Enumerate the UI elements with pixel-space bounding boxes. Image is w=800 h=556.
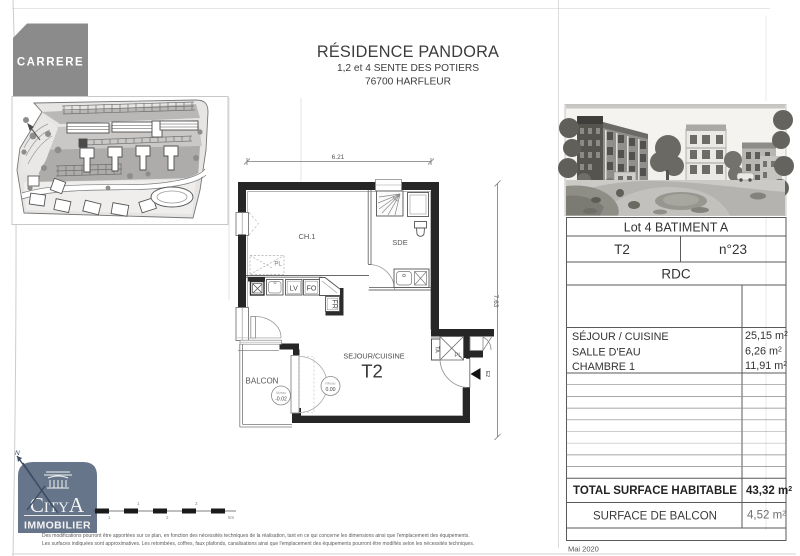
svg-text:Les surfaces indiquées sont ap: Les surfaces indiquées sont approximativ… [42,541,474,547]
svg-text:Niveau: Niveau [276,391,286,395]
svg-text:5m: 5m [228,515,235,520]
svg-text:T2: T2 [361,361,383,382]
svg-text:-0.02: -0.02 [275,397,287,403]
svg-text:0.00: 0.00 [325,387,335,393]
svg-text:IMMOBILIER: IMMOBILIER [24,520,91,532]
svg-text:1,2 et 4 SENTE DES POTIERS: 1,2 et 4 SENTE DES POTIERS [337,63,479,74]
svg-text:CH.1: CH.1 [298,232,315,241]
svg-text:76700 HARFLEUR: 76700 HARFLEUR [365,77,451,88]
svg-text:LV: LV [290,286,298,293]
svg-text:SDE: SDE [392,238,407,247]
svg-text:RÉSIDENCE PANDORA: RÉSIDENCE PANDORA [317,42,499,61]
svg-text:25,15 m2: 25,15 m2 [745,330,788,342]
svg-text:PL: PL [454,353,462,359]
svg-text:SALLE D'EAU: SALLE D'EAU [572,347,641,359]
svg-text:N: N [15,450,20,457]
svg-text:FO: FO [307,286,317,293]
svg-text:SEJOUR/CUISINE: SEJOUR/CUISINE [343,352,404,361]
svg-text:PL: PL [274,262,282,268]
svg-text:4,52 m2: 4,52 m2 [747,510,786,522]
svg-text:T2: T2 [614,242,630,257]
svg-text:CARRERE: CARRERE [17,57,84,69]
svg-text:RDC: RDC [661,267,690,282]
svg-text:SÉJOUR / CUISINE: SÉJOUR / CUISINE [572,330,669,343]
svg-text:Mai 2020: Mai 2020 [568,545,599,554]
svg-text:Niveau: Niveau [326,382,336,386]
svg-text:Des modifications pourront êtr: Des modifications pourront être apportée… [42,533,470,539]
svg-text:TOTAL SURFACE HABITABLE: TOTAL SURFACE HABITABLE [573,485,737,497]
svg-text:SURFACE DE BALCON: SURFACE DE BALCON [593,511,717,523]
svg-text:n°23: n°23 [719,242,747,257]
svg-text:6.21: 6.21 [332,154,345,161]
svg-text:11,91 m2: 11,91 m2 [745,360,787,372]
svg-text:7.63: 7.63 [492,295,499,308]
svg-text:43,32 m2: 43,32 m2 [746,485,792,497]
svg-text:FR: FR [331,300,338,309]
svg-text:CHAMBRE 1: CHAMBRE 1 [572,361,635,373]
svg-text:E2: E2 [484,371,490,377]
svg-text:Lot 4 BATIMENT A: Lot 4 BATIMENT A [624,221,729,235]
svg-text:BALCON: BALCON [246,377,279,386]
svg-text:6,26 m2: 6,26 m2 [745,346,782,358]
svg-text:TA: TA [434,346,440,353]
